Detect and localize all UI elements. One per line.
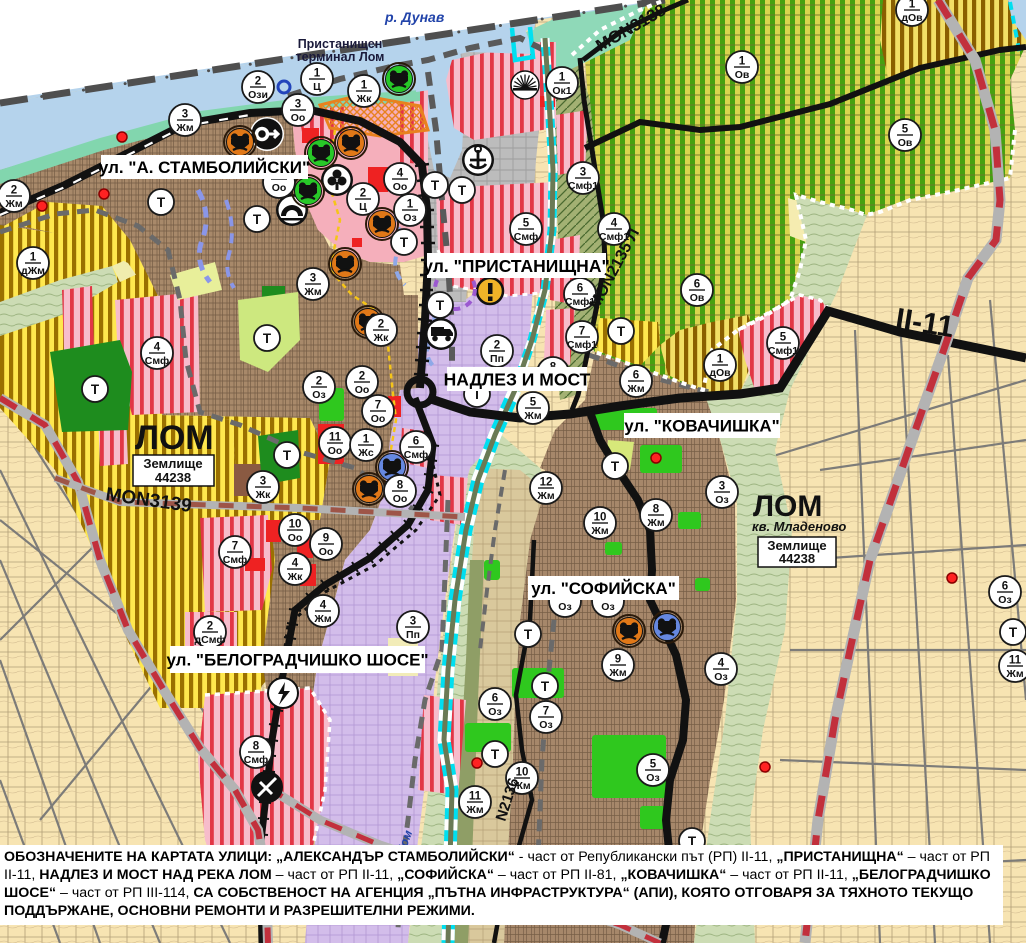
svg-text:2: 2	[316, 376, 322, 388]
svg-text:Жм: Жм	[590, 525, 608, 537]
svg-text:дОв: дОв	[709, 367, 731, 379]
svg-text:НАДЛЕЗ И МОСТ: НАДЛЕЗ И МОСТ	[444, 369, 591, 389]
svg-text:Оз: Оз	[403, 212, 416, 224]
svg-text:3: 3	[410, 616, 416, 628]
svg-text:4: 4	[292, 558, 299, 570]
svg-text:6: 6	[413, 436, 419, 448]
svg-text:Жк: Жк	[356, 93, 372, 105]
svg-text:Оз: Оз	[539, 719, 552, 731]
svg-text:Т: Т	[253, 212, 262, 227]
svg-text:1: 1	[717, 354, 724, 366]
svg-text:11: 11	[1009, 655, 1022, 667]
svg-text:ШОСЕ“ – част от РП III-114, СА: ШОСЕ“ – част от РП III-114, СА СОБСТВЕНО…	[4, 885, 973, 901]
svg-text:8: 8	[253, 741, 260, 753]
svg-text:Оз: Оз	[646, 772, 659, 784]
svg-text:11: 11	[469, 791, 482, 803]
svg-text:ул. "А. СТАМБОЛИЙСКИ": ул. "А. СТАМБОЛИЙСКИ"	[99, 158, 310, 177]
svg-text:1: 1	[559, 72, 566, 84]
svg-text:Оз: Оз	[998, 594, 1011, 606]
svg-text:5: 5	[780, 332, 787, 344]
svg-text:7: 7	[375, 400, 381, 412]
svg-text:4: 4	[154, 342, 161, 354]
svg-text:Оо: Оо	[291, 112, 306, 124]
svg-text:ул. "КОВАЧИШКА": ул. "КОВАЧИШКА"	[624, 417, 780, 436]
svg-text:Т: Т	[431, 178, 440, 193]
svg-text:2: 2	[359, 371, 365, 383]
svg-text:дОв: дОв	[901, 12, 923, 24]
svg-text:2: 2	[378, 319, 384, 331]
svg-text:Т: Т	[283, 448, 292, 463]
svg-text:1: 1	[407, 199, 414, 211]
svg-text:1: 1	[363, 434, 370, 446]
svg-text:3: 3	[580, 167, 586, 179]
svg-text:Т: Т	[263, 331, 272, 346]
svg-text:Оз: Оз	[715, 494, 728, 506]
svg-text:Жм: Жм	[4, 198, 22, 210]
svg-text:Оо: Оо	[328, 445, 343, 457]
svg-text:10: 10	[289, 519, 302, 531]
svg-text:Жм: Жм	[1005, 668, 1023, 680]
svg-text:терминал Лом: терминал Лом	[296, 50, 385, 64]
svg-text:Ов: Ов	[690, 292, 705, 304]
svg-text:2: 2	[255, 76, 261, 88]
svg-text:Ок1: Ок1	[552, 85, 571, 97]
svg-text:Смф: Смф	[514, 231, 538, 243]
svg-text:Смф1: Смф1	[768, 345, 798, 357]
svg-text:Смф: Смф	[244, 754, 268, 766]
svg-text:Оз: Оз	[312, 389, 325, 401]
svg-text:р. Дунав: р. Дунав	[384, 9, 445, 25]
svg-text:Пп: Пп	[490, 353, 504, 365]
svg-text:8: 8	[397, 480, 404, 492]
svg-text:1: 1	[30, 252, 37, 264]
svg-text:ул. "ПРИСТАНИЩНА": ул. "ПРИСТАНИЩНА"	[423, 256, 610, 276]
svg-text:9: 9	[615, 654, 621, 666]
svg-text:7: 7	[579, 326, 585, 338]
svg-text:ул. "БЕЛОГРАДЧИШКО ШОСЕ": ул. "БЕЛОГРАДЧИШКО ШОСЕ"	[166, 651, 428, 670]
svg-text:3: 3	[260, 476, 266, 488]
svg-text:6: 6	[633, 370, 639, 382]
svg-text:4: 4	[611, 218, 618, 230]
svg-text:Жс: Жс	[357, 447, 373, 459]
svg-text:3: 3	[295, 99, 301, 111]
svg-text:3: 3	[182, 109, 188, 121]
svg-text:Т: Т	[436, 298, 445, 313]
svg-text:Т: Т	[157, 195, 166, 210]
svg-text:8: 8	[653, 504, 660, 516]
svg-text:4: 4	[397, 168, 404, 180]
svg-text:Пп: Пп	[406, 629, 420, 641]
svg-text:Ц: Ц	[313, 81, 321, 93]
svg-text:4: 4	[718, 658, 725, 670]
svg-text:Т: Т	[1009, 625, 1018, 640]
svg-text:Оо: Оо	[288, 532, 303, 544]
svg-text:Смф1: Смф1	[567, 339, 597, 351]
svg-text:Ов: Ов	[735, 69, 750, 81]
svg-text:Оз: Оз	[714, 671, 727, 683]
svg-text:Жм: Жм	[536, 490, 554, 502]
svg-text:6: 6	[1002, 581, 1008, 593]
svg-text:ул. "СОФИЙСКА": ул. "СОФИЙСКА"	[531, 579, 676, 598]
svg-text:3: 3	[719, 481, 725, 493]
svg-text:ПОДДЪРЖАНЕ, ОСНОВНИ РЕМОНТИ И: ПОДДЪРЖАНЕ, ОСНОВНИ РЕМОНТИ И РАЗРЕШИТЕЛ…	[4, 903, 475, 919]
svg-text:5: 5	[530, 397, 537, 409]
svg-text:Ов: Ов	[898, 137, 913, 149]
svg-text:Жм: Жм	[313, 613, 331, 625]
svg-text:1: 1	[361, 80, 368, 92]
svg-text:10: 10	[516, 767, 529, 779]
svg-text:Жм: Жм	[626, 383, 644, 395]
svg-text:Т: Т	[491, 747, 500, 762]
svg-text:Т: Т	[524, 627, 533, 642]
svg-text:Жм: Жм	[608, 667, 626, 679]
svg-text:1: 1	[909, 0, 916, 11]
svg-text:5: 5	[650, 759, 657, 771]
svg-text:1: 1	[739, 56, 746, 68]
svg-text:Т: Т	[400, 235, 409, 250]
svg-text:Жм: Жм	[303, 286, 321, 298]
svg-text:Т: Т	[611, 459, 620, 474]
svg-text:Оо: Оо	[272, 182, 287, 194]
svg-text:Т: Т	[617, 324, 626, 339]
svg-text:Оо: Оо	[319, 546, 334, 558]
svg-text:Оо: Оо	[393, 493, 408, 505]
svg-text:2: 2	[360, 188, 366, 200]
svg-text:12: 12	[540, 477, 553, 489]
svg-text:10: 10	[594, 512, 607, 524]
svg-text:7: 7	[232, 541, 238, 553]
svg-text:Жм: Жм	[523, 410, 541, 422]
svg-text:II-11, НАДЛЕЗ И МОСТ НАД РЕКА: II-11, НАДЛЕЗ И МОСТ НАД РЕКА ЛОМ – част…	[4, 865, 991, 883]
svg-text:ЛОМ: ЛОМ	[135, 419, 214, 457]
svg-text:5: 5	[902, 124, 909, 136]
svg-text:Смф: Смф	[404, 449, 428, 461]
svg-text:Жк: Жк	[287, 571, 303, 583]
svg-text:Жм: Жм	[646, 517, 664, 529]
svg-text:Пристанищен: Пристанищен	[298, 37, 383, 51]
svg-text:44238: 44238	[155, 470, 191, 485]
svg-text:кв. Младеново: кв. Младеново	[752, 519, 846, 534]
svg-text:Жм: Жм	[465, 804, 483, 816]
svg-text:4: 4	[320, 600, 327, 612]
svg-text:5: 5	[523, 218, 530, 230]
svg-text:дЖм: дЖм	[21, 265, 45, 277]
svg-text:Оо: Оо	[393, 181, 408, 193]
svg-text:Т: Т	[541, 679, 550, 694]
svg-text:Смф1: Смф1	[568, 180, 598, 192]
svg-text:2: 2	[207, 621, 213, 633]
svg-text:Ц: Ц	[359, 201, 367, 213]
svg-text:Жм: Жм	[175, 122, 193, 134]
svg-text:Землище: Землище	[143, 456, 202, 471]
svg-text:11: 11	[329, 432, 342, 444]
svg-text:9: 9	[323, 533, 329, 545]
svg-text:Жк: Жк	[373, 332, 389, 344]
svg-text:6: 6	[492, 693, 498, 705]
svg-text:3: 3	[310, 273, 316, 285]
svg-text:7: 7	[543, 706, 549, 718]
svg-text:2: 2	[494, 340, 500, 352]
svg-text:Оо: Оо	[355, 384, 370, 396]
svg-text:44238: 44238	[779, 551, 815, 566]
svg-text:Оз: Оз	[488, 706, 501, 718]
svg-text:Т: Т	[91, 382, 100, 397]
svg-text:Смф: Смф	[223, 554, 247, 566]
svg-text:6: 6	[694, 279, 700, 291]
svg-text:Оз: Оз	[558, 601, 571, 613]
svg-text:дСмф: дСмф	[194, 634, 225, 646]
svg-text:ОБОЗНАЧЕНИТЕ НА КАРТАТА УЛИЦИ:: ОБОЗНАЧЕНИТЕ НА КАРТАТА УЛИЦИ: „АЛЕКСАНД…	[4, 847, 990, 865]
svg-text:Ози: Ози	[248, 89, 268, 101]
svg-text:Оз: Оз	[601, 601, 614, 613]
svg-text:Оо: Оо	[371, 413, 386, 425]
svg-text:Жк: Жк	[255, 489, 271, 501]
svg-text:1: 1	[314, 68, 321, 80]
svg-text:6: 6	[577, 283, 583, 295]
svg-text:2: 2	[11, 185, 17, 197]
svg-text:Т: Т	[458, 183, 467, 198]
svg-text:Смф: Смф	[145, 355, 169, 367]
